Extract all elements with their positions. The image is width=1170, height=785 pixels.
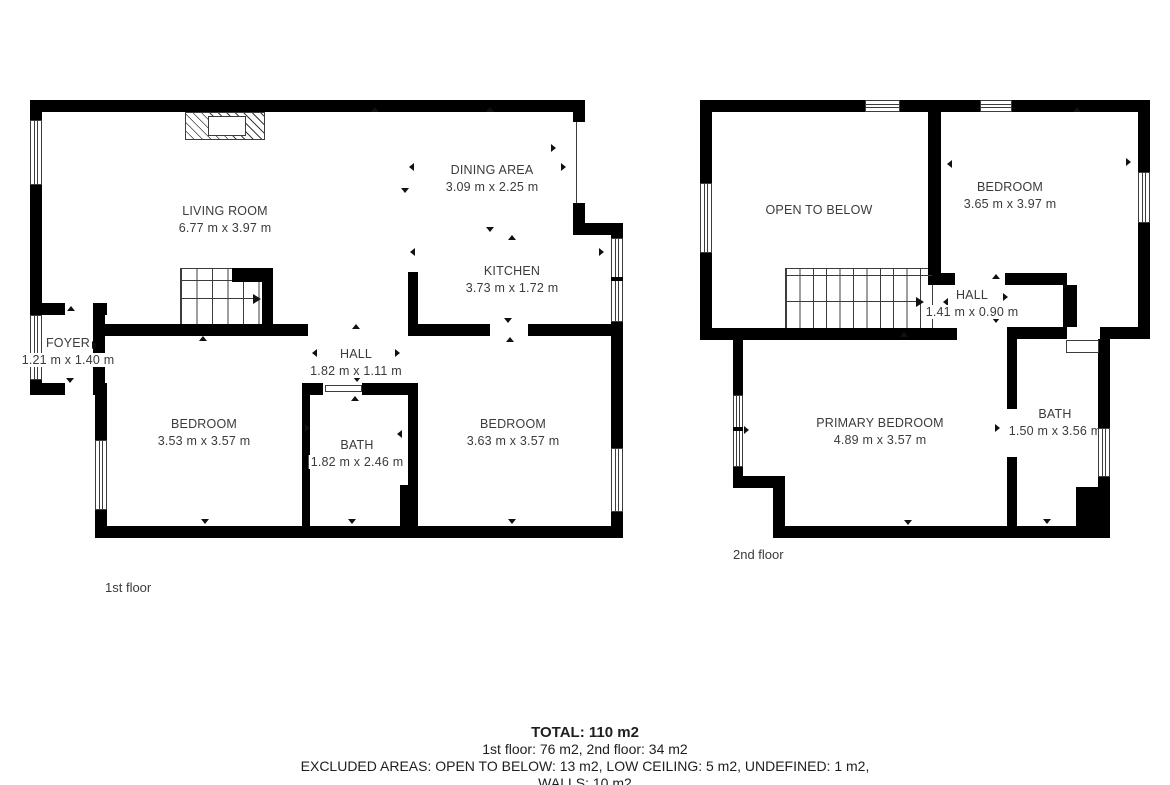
room-label-dining-area: DINING AREA 3.09 m x 2.25 m [444,162,541,196]
wall [302,383,323,395]
room-dims: 1.82 m x 2.46 m [309,455,406,469]
wall [1007,327,1067,339]
window [700,183,712,253]
room-dims: 3.63 m x 3.57 m [465,434,562,448]
window [30,120,42,185]
room-name: DINING AREA [449,163,536,177]
door-marker [992,274,1000,279]
room-label-kitchen: KITCHEN 3.73 m x 1.72 m [464,263,561,297]
summary-walls-line: WALLS: 10 m2 [0,775,1170,785]
area-marker [1126,158,1131,166]
room-name: FOYER [44,336,92,350]
wall [773,482,785,538]
room-label-bath-1: BATH 1.82 m x 2.46 m [309,437,406,471]
wall [1007,457,1017,528]
room-label-hall-1: HALL 1.82 m x 1.11 m [308,346,404,380]
area-marker [508,519,516,524]
room-dims: 3.65 m x 3.97 m [962,197,1059,211]
wall [95,526,623,538]
stair-landing-line [786,275,932,276]
door-marker [351,396,359,401]
area-marker [744,426,749,434]
area-marker [305,424,310,432]
wall [1007,339,1017,409]
window-mullion [733,427,743,431]
wall [528,324,623,336]
window [980,100,1012,112]
area-marker [900,332,908,337]
stair-mid-line [786,301,920,302]
room-name: LIVING ROOM [180,204,270,218]
window-mullion [611,277,623,281]
summary: TOTAL: 110 m2 1st floor: 76 m2, 2nd floo… [0,724,1170,785]
area-marker [201,519,209,524]
room-dims: 1.50 m x 3.56 m [1009,424,1102,438]
wall [928,112,941,273]
window [865,100,900,112]
wall [30,303,65,315]
window [95,440,107,510]
door-marker [504,318,512,323]
wall [773,526,1110,538]
wall [30,383,65,395]
door-leaf [325,385,362,392]
area-marker [599,248,604,256]
area-marker [561,163,566,171]
room-name: HALL [954,288,990,302]
window [733,395,743,467]
wall [95,324,308,336]
wall [30,100,585,112]
stair-landing-line [181,280,232,281]
room-name: HALL [338,347,374,361]
wall [700,100,1150,112]
room-label-primary-bedroom: PRIMARY BEDROOM 4.89 m x 3.57 m [814,415,946,449]
room-dims: 4.89 m x 3.57 m [832,433,929,447]
wall [928,273,955,285]
area-marker [371,107,379,112]
room-name: OPEN TO BELOW [763,203,874,217]
area-marker [551,144,556,152]
stairs [785,268,933,330]
wall [1005,273,1067,285]
room-dims: 3.73 m x 1.72 m [464,281,561,295]
stair-direction-arrow [253,294,261,304]
door-marker [947,160,952,168]
floor-plan-canvas: LIVING ROOM 6.77 m x 3.97 m DINING AREA … [0,0,1170,785]
area-marker [486,227,494,232]
summary-excluded-line: EXCLUDED AREAS: OPEN TO BELOW: 13 m2, LO… [0,758,1170,775]
room-label-living-room: LIVING ROOM 6.77 m x 3.97 m [177,203,274,237]
wall [1063,285,1077,327]
room-name: BEDROOM [478,417,548,431]
area-marker [508,235,516,240]
wall [573,112,585,122]
room-name: BEDROOM [975,180,1045,194]
room-dims: 1.21 m x 1.40 m [20,353,117,367]
shaft [1076,487,1098,527]
wall [700,328,957,340]
room-label-hall-2: HALL 1.41 m x 0.90 m [924,287,1021,321]
room-label-bedroom-2f: BEDROOM 3.65 m x 3.97 m [962,179,1059,213]
door-marker [66,378,74,383]
room-label-bedroom-left: BEDROOM 3.53 m x 3.57 m [156,416,253,450]
area-marker [410,248,415,256]
floor-label-1st: 1st floor [105,580,151,595]
area-marker [401,188,409,193]
room-dims: 1.41 m x 0.90 m [924,305,1021,319]
summary-floors-line: 1st floor: 76 m2, 2nd floor: 34 m2 [0,741,1170,758]
door-marker [995,424,1000,432]
area-marker [1043,519,1051,524]
window [611,448,623,512]
window [1098,428,1110,477]
wall [573,223,623,235]
room-name: BATH [1038,407,1071,421]
door-marker [199,336,207,341]
room-dims: 1.82 m x 1.11 m [308,364,404,378]
wall [573,203,585,223]
room-dims: 3.09 m x 2.25 m [444,180,541,194]
door-marker [67,306,75,311]
window [1138,172,1150,223]
area-marker [904,520,912,525]
wall [400,485,418,528]
room-name: BEDROOM [169,417,239,431]
wall [408,324,490,336]
room-label-foyer: FOYER 1.21 m x 1.40 m [20,335,117,369]
room-label-bedroom-right: BEDROOM 3.63 m x 3.57 m [465,416,562,450]
area-marker [1073,107,1081,112]
room-name: KITCHEN [482,264,542,278]
room-label-open-to-below: OPEN TO BELOW [763,202,874,219]
room-dims: 3.53 m x 3.57 m [156,434,253,448]
area-boundary-line [576,122,577,203]
wall [262,268,273,327]
area-marker [486,107,494,112]
room-name: PRIMARY BEDROOM [814,416,946,430]
area-marker [348,519,356,524]
room-label-bath-2: BATH 1.50 m x 3.56 m [1009,406,1102,440]
room-name: BATH [338,438,375,452]
stair-mid-line [181,298,257,299]
floor-label-2nd: 2nd floor [733,547,784,562]
wall [1100,327,1150,339]
summary-total: TOTAL: 110 m2 [0,724,1170,741]
room-dims: 6.77 m x 3.97 m [177,221,274,235]
area-marker [409,163,414,171]
door-leaf [1066,340,1099,353]
area-marker [352,324,360,329]
door-marker [506,337,514,342]
fireplace-inner [208,116,246,136]
